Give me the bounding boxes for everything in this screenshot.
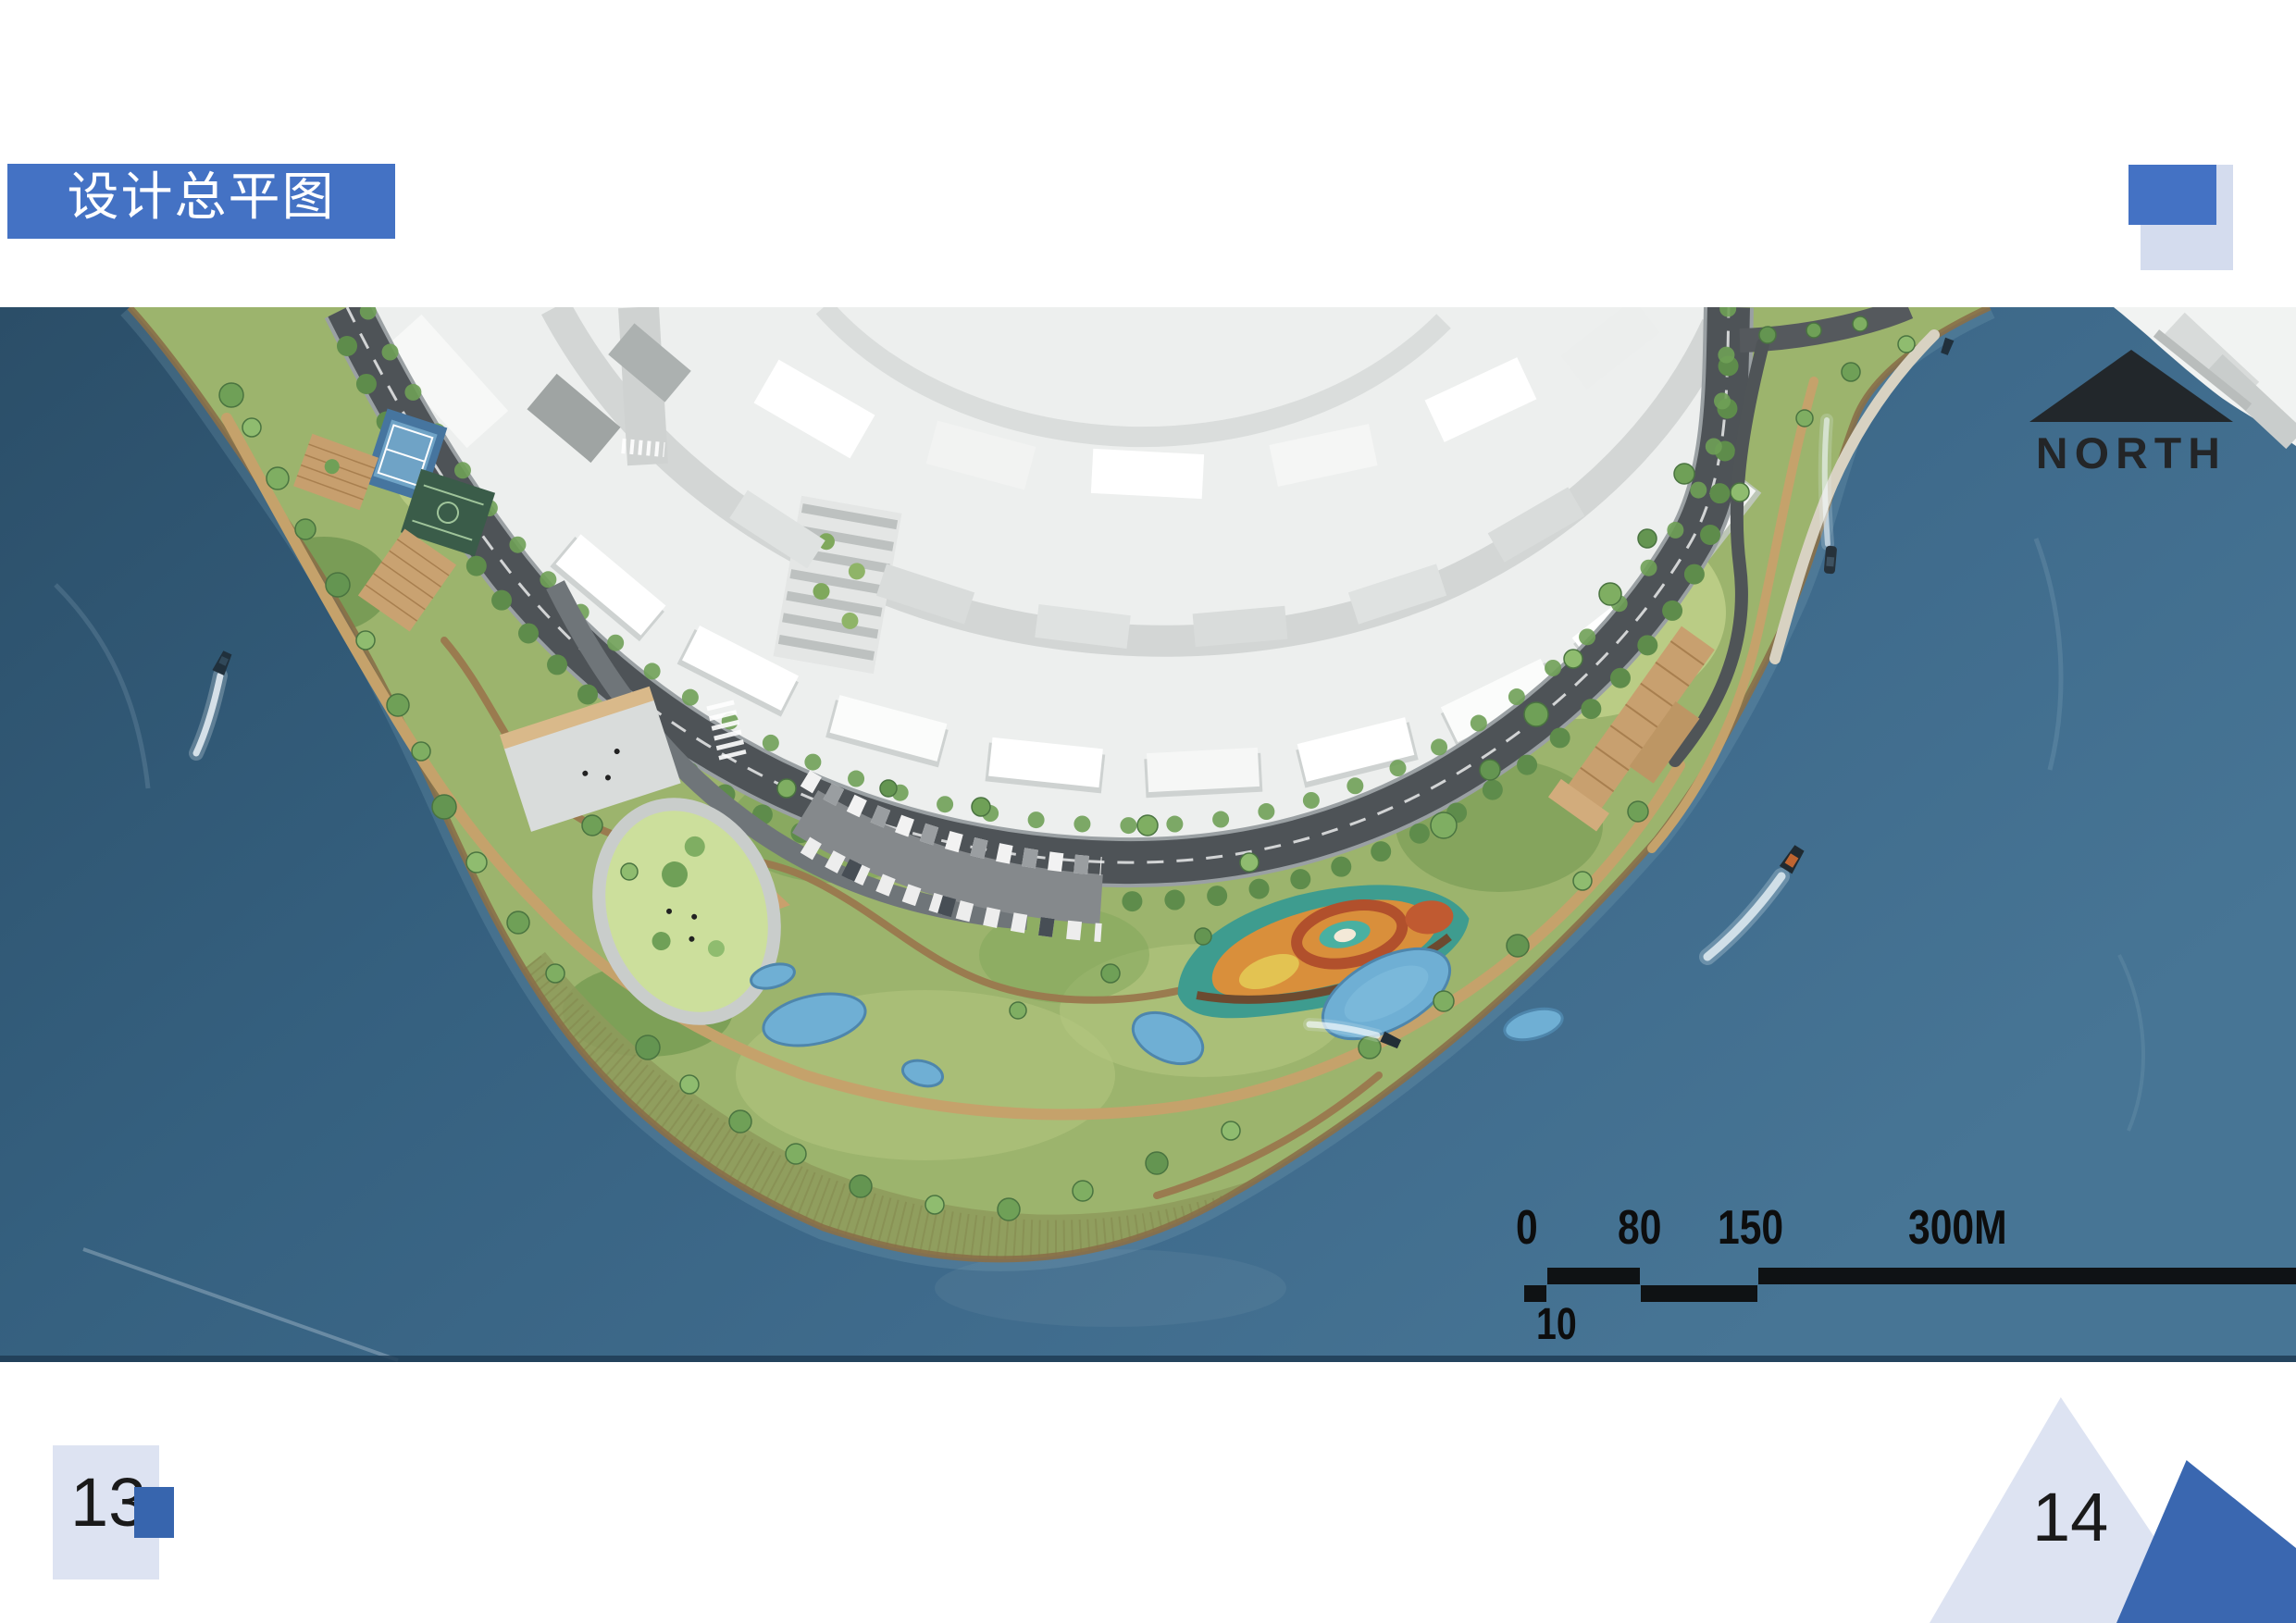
north-label: NORTH — [2028, 427, 2235, 478]
top-right-dark-rect-decor — [2128, 165, 2216, 225]
site-plan-graphic — [0, 307, 2296, 1362]
site-plan-map — [0, 307, 2296, 1362]
bottom-left-blue-square-decor — [134, 1487, 174, 1538]
map-bottom-edge — [0, 1356, 2296, 1362]
presentation-slide: 设计总平图 — [0, 0, 2296, 1623]
north-arrow-icon — [2029, 350, 2233, 422]
page-number-right: 14 — [2032, 1478, 2108, 1556]
slide-title: 设计总平图 — [68, 164, 336, 230]
north-indicator: NORTH — [2029, 350, 2233, 489]
slide-title-bar: 设计总平图 — [7, 164, 395, 239]
